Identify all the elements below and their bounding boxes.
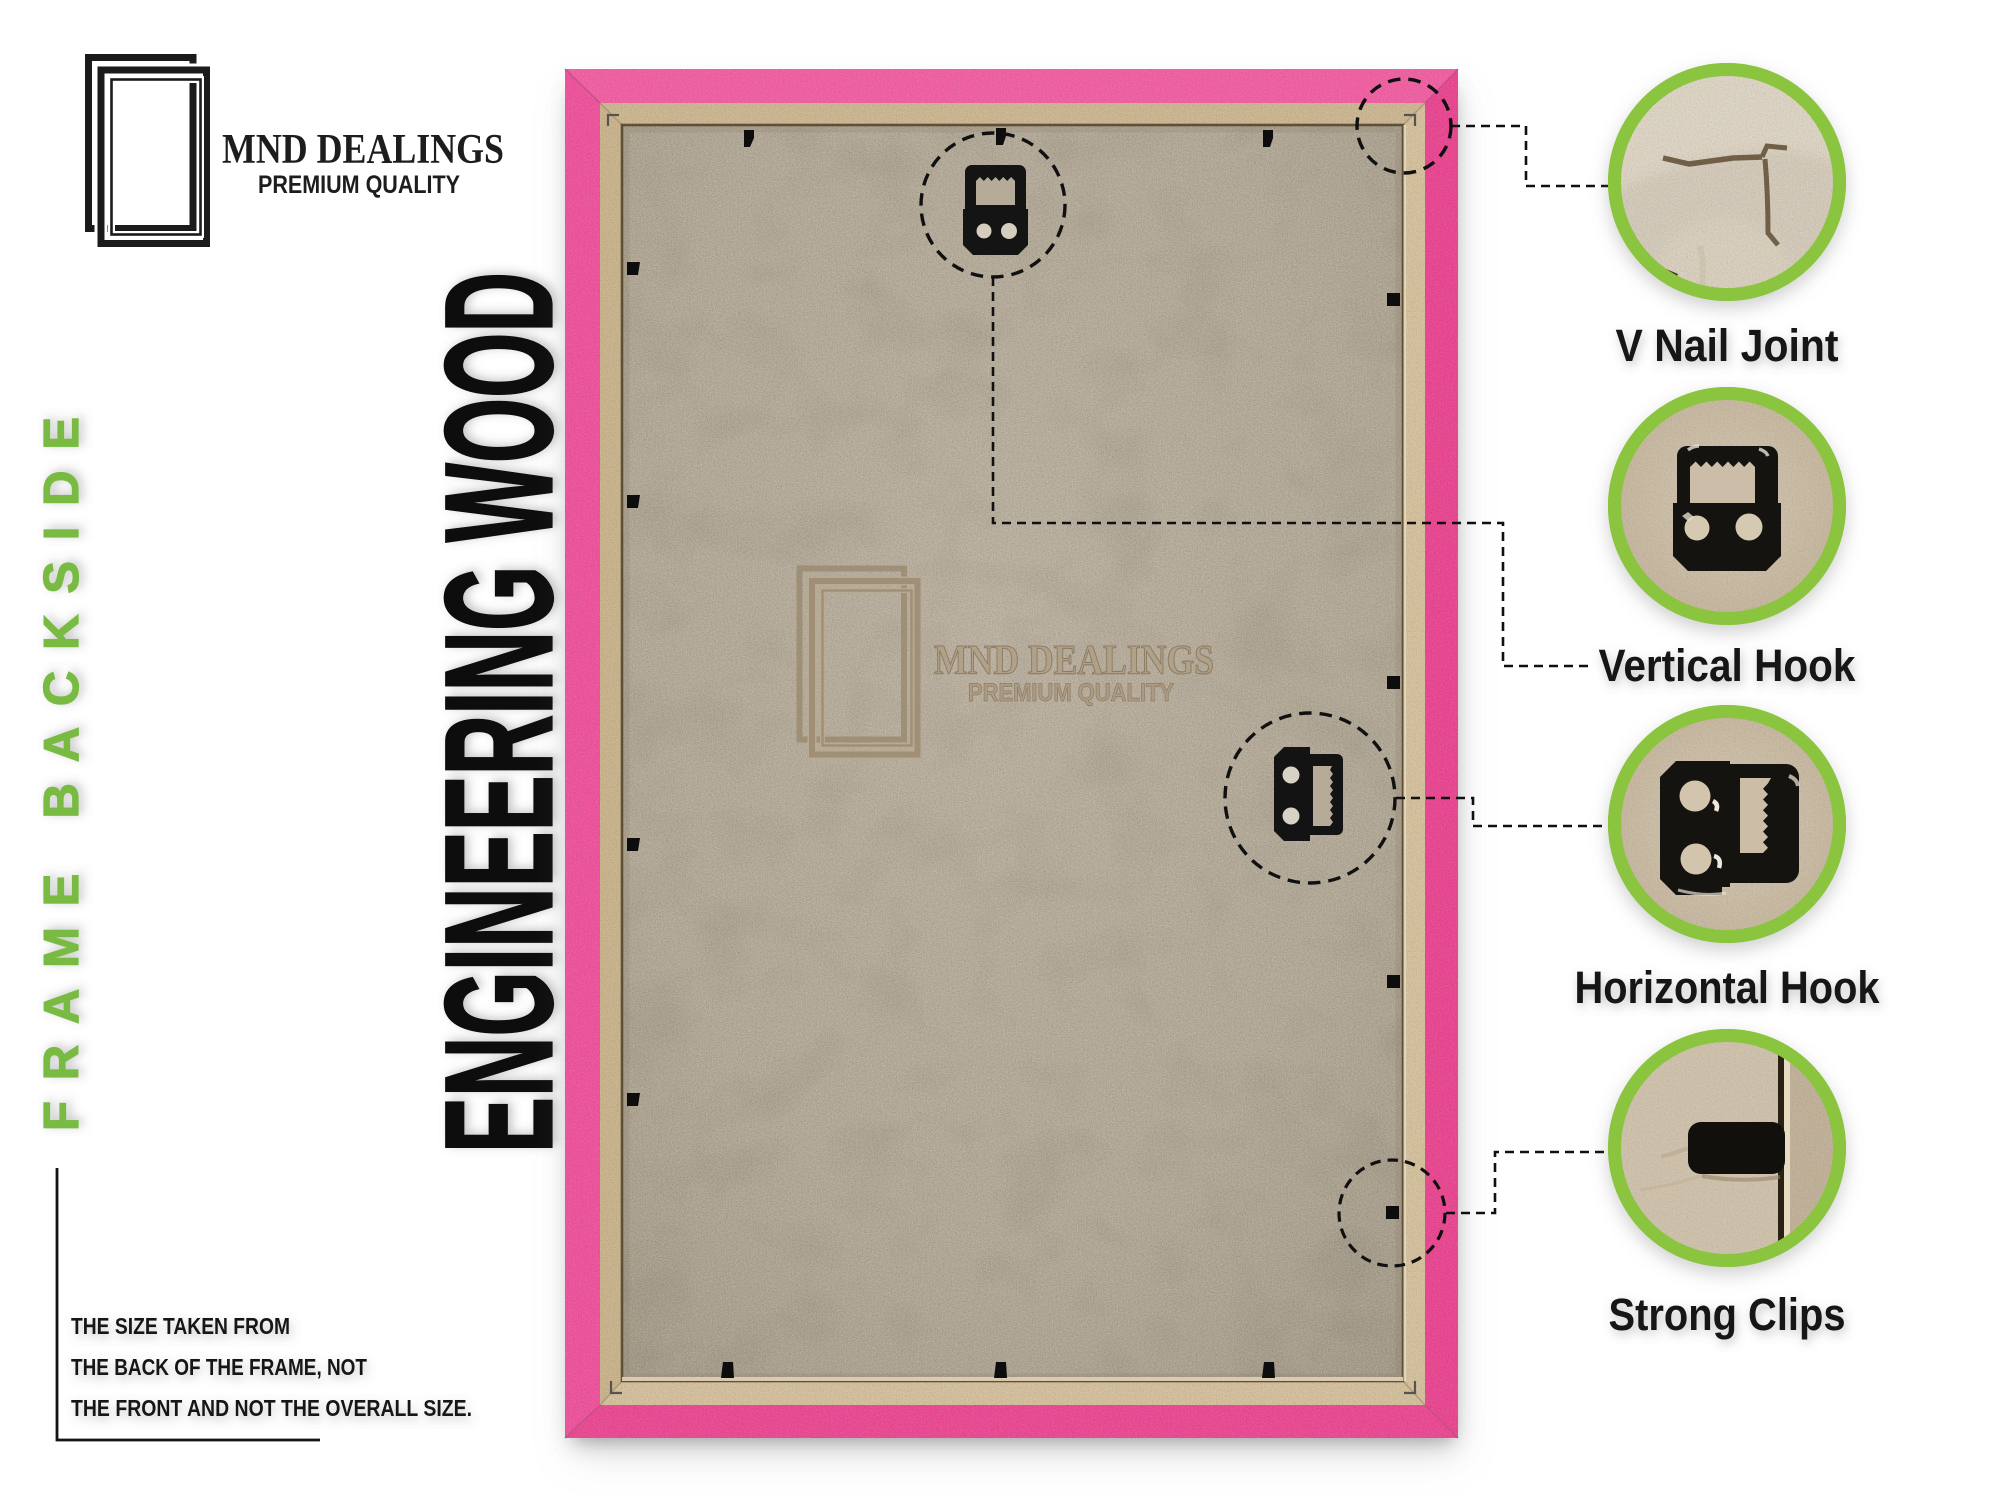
svg-text:THE BACK OF THE FRAME, NOT: THE BACK OF THE FRAME, NOT <box>71 1354 368 1380</box>
svg-text:MND DEALINGS: MND DEALINGS <box>934 638 1214 684</box>
svg-text:THE FRONT AND NOT THE OVERALL: THE FRONT AND NOT THE OVERALL SIZE. <box>71 1395 472 1421</box>
svg-text:FRAME BACKSIDE: FRAME BACKSIDE <box>35 417 89 1131</box>
svg-text:MND DEALINGS: MND DEALINGS <box>222 127 504 173</box>
svg-text:PREMIUM QUALITY: PREMIUM QUALITY <box>258 171 460 199</box>
svg-text:Strong Clips: Strong Clips <box>1609 1289 1846 1340</box>
svg-text:Horizontal Hook: Horizontal Hook <box>1575 962 1881 1013</box>
svg-text:THE SIZE TAKEN FROM: THE SIZE TAKEN FROM <box>71 1313 290 1339</box>
svg-text:V Nail Joint: V Nail Joint <box>1616 320 1839 371</box>
svg-text:Vertical Hook: Vertical Hook <box>1599 640 1857 691</box>
svg-text:PREMIUM QUALITY: PREMIUM QUALITY <box>968 679 1174 707</box>
svg-text:ENGINEERING WOOD: ENGINEERING WOOD <box>414 272 585 1153</box>
